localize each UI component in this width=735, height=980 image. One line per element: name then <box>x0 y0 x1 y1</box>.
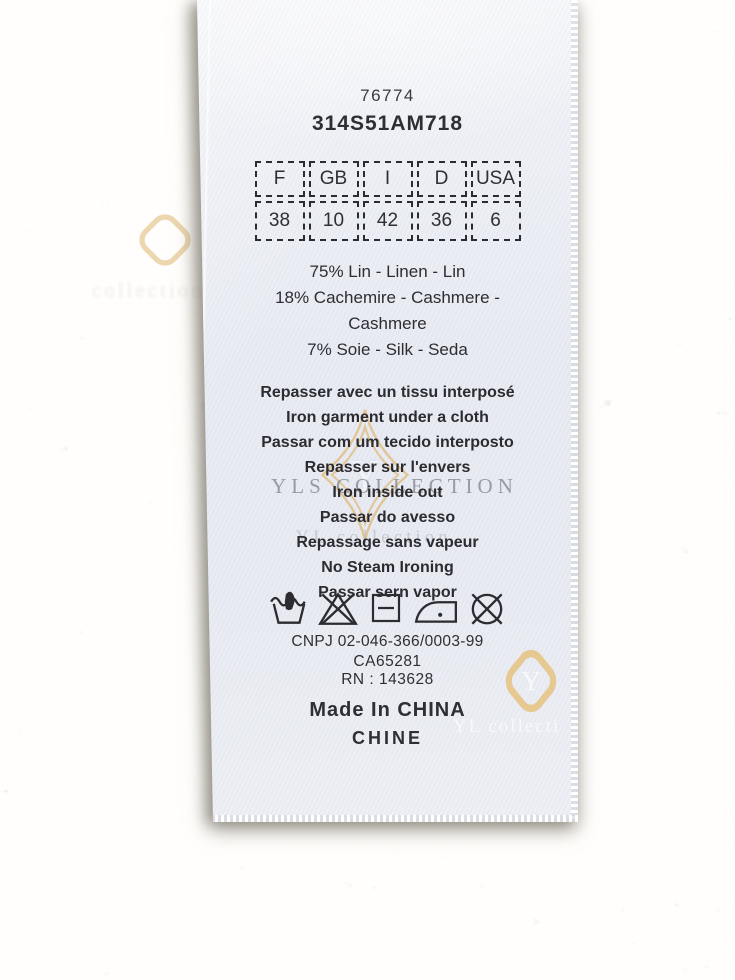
size-header-usa: USA <box>471 161 521 197</box>
made-in-line: Made In CHINA <box>197 699 578 722</box>
size-value-f: 38 <box>255 201 305 241</box>
iron-low-heat-icon <box>413 589 459 627</box>
size-value-usa: 6 <box>471 201 521 241</box>
do-not-bleach-icon <box>317 589 359 627</box>
care-line: Iron inside out <box>197 480 578 505</box>
care-line: No Steam Ironing <box>197 555 578 580</box>
photo-scene: collection Y YLS COLLECTION YL collectio… <box>0 0 735 980</box>
size-table-header-row: F GB I D USA <box>255 161 521 197</box>
size-header-f: F <box>255 161 305 197</box>
care-line: Repasser avec un tissu interposé <box>197 380 578 405</box>
style-code: 314S51AM718 <box>197 112 578 136</box>
size-table-value-row: 38 10 42 36 6 <box>255 201 521 241</box>
composition-line: 75% Lin - Linen - Lin <box>197 259 578 285</box>
cnpj-number: CNPJ 02-046-366/0003-99 <box>197 633 578 651</box>
size-header-d: D <box>417 161 467 197</box>
do-not-dry-clean-icon <box>466 589 508 627</box>
product-code: 76774 <box>197 86 578 106</box>
care-line: Iron garment under a cloth <box>197 405 578 430</box>
care-symbols-row <box>197 589 578 627</box>
composition-line: 18% Cachemire - Cashmere - <box>197 285 578 311</box>
size-value-gb: 10 <box>309 201 359 241</box>
origin-french-line: CHINE <box>197 728 578 749</box>
size-value-d: 36 <box>417 201 467 241</box>
composition-block: 75% Lin - Linen - Lin 18% Cachemire - Ca… <box>197 259 578 363</box>
care-line: Passar com um tecido interposto <box>197 430 578 455</box>
gold-diamond-icon <box>122 202 208 278</box>
care-label: Y YLS COLLECTION YL collection Y YL coll… <box>197 0 578 822</box>
care-line: Passar do avesso <box>197 505 578 530</box>
size-header-gb: GB <box>309 161 359 197</box>
watermark-corner-text: collection <box>92 278 205 303</box>
watermark-diamond-top-left <box>122 202 208 278</box>
size-table: F GB I D USA 38 10 42 36 6 <box>251 157 525 245</box>
care-line: Repasser sur l'envers <box>197 455 578 480</box>
care-instructions-block: Repasser avec un tissu interposé Iron ga… <box>197 380 578 605</box>
size-header-i: I <box>363 161 413 197</box>
dry-flat-icon <box>366 589 406 627</box>
hand-wash-icon <box>268 589 310 627</box>
care-line: Repassage sans vapeur <box>197 530 578 555</box>
care-label-shadow-wrap: Y YLS COLLECTION YL collection Y YL coll… <box>197 0 578 822</box>
ca-number: CA65281 <box>197 653 578 671</box>
composition-line: Cashmere <box>197 311 578 337</box>
label-print-area: 76774 314S51AM718 F GB I D USA 38 10 42 … <box>197 0 578 822</box>
size-value-i: 42 <box>363 201 413 241</box>
composition-line: 7% Soie - Silk - Seda <box>197 337 578 363</box>
rn-number: RN : 143628 <box>197 671 578 689</box>
